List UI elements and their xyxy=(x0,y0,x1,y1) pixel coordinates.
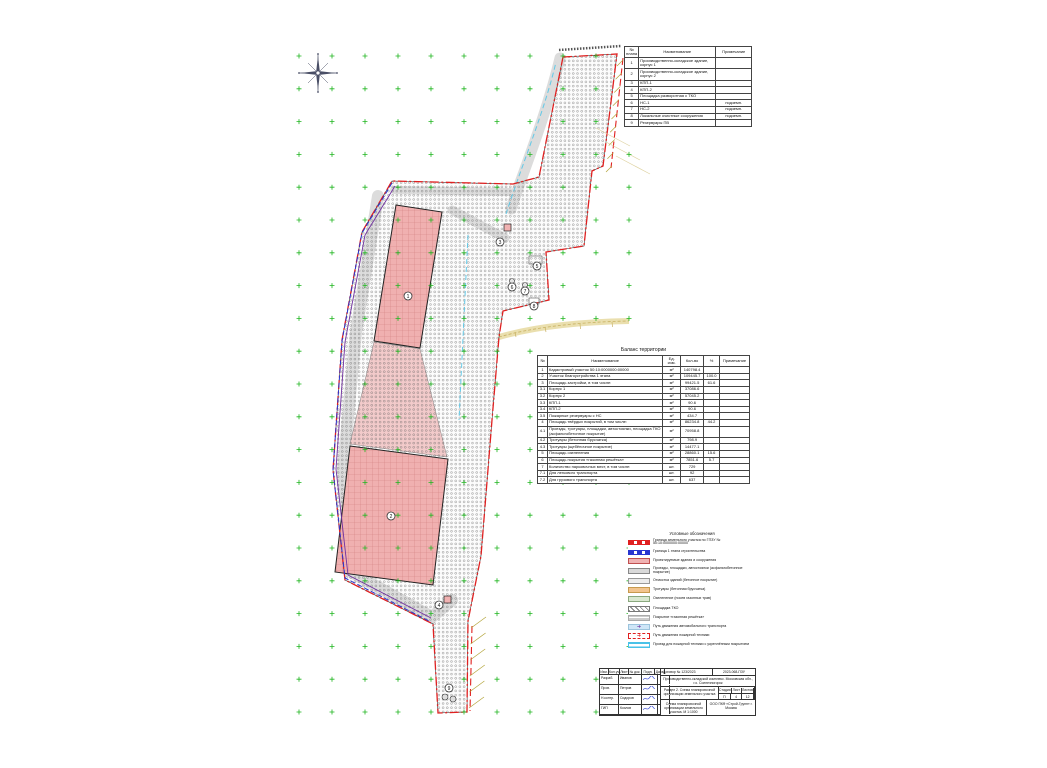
table-cell xyxy=(720,373,750,380)
table-row: 3.1Корпус 1м²37086.6 xyxy=(538,386,750,393)
table-cell: 637 xyxy=(681,477,704,484)
table-row: 3.5Пожарные резервуары с НСм²434.7 xyxy=(538,413,750,420)
table-cell: Проезды, тротуары, площадки, автостоянки… xyxy=(547,426,662,437)
table-cell xyxy=(720,426,750,437)
table-cell xyxy=(720,393,750,400)
legend-title: Условные обозначения xyxy=(628,531,756,536)
table-cell: Площадь твёрдых покрытий, в том числе: xyxy=(547,419,662,426)
svg-text:5: 5 xyxy=(536,264,539,270)
table-cell xyxy=(720,386,750,393)
table-cell xyxy=(720,367,750,374)
sheet-value: 4 xyxy=(731,694,743,699)
pink-swatch xyxy=(628,558,650,564)
green-swatch xyxy=(628,596,650,602)
table-cell: Тротуары (бетонная брусчатка) xyxy=(547,437,662,444)
column-header: % xyxy=(704,356,720,367)
table-cell: Резервуары ПВ xyxy=(639,120,716,127)
signature-col-header: № док. xyxy=(629,669,642,674)
signature-scribble xyxy=(642,685,658,694)
table-cell xyxy=(720,444,750,451)
table-cell: 109445.7 xyxy=(681,373,704,380)
table-cell xyxy=(704,367,720,374)
signature-role: Н.контр. xyxy=(600,695,619,704)
table-cell xyxy=(704,393,720,400)
table-cell: 6 xyxy=(625,100,639,107)
table-row: 8Локальные очистные сооруженияподземн. xyxy=(625,113,752,120)
document-code: 2023-068-ПЗУ xyxy=(713,669,755,675)
table-cell: 44.2 xyxy=(704,419,720,426)
table-row: 3КПП-1 xyxy=(625,80,752,87)
table-cell: КПП-1 xyxy=(547,400,662,407)
legend-label: Граница земельного участка по ГПЗУ № 50:… xyxy=(653,539,756,547)
table-row: 4.1Проезды, тротуары, площадки, автостоя… xyxy=(538,426,750,437)
existing-road xyxy=(499,321,629,337)
table-row: 3.2Корпус 2м²57045.2 xyxy=(538,393,750,400)
table-cell xyxy=(720,380,750,387)
table-cell xyxy=(720,437,750,444)
table-row: 9Резервуары ПВ xyxy=(625,120,752,127)
table-cell: 7.2 xyxy=(538,477,548,484)
legend-label: Проектируемые здания и сооружения xyxy=(653,559,716,563)
table-row: 7.2Для грузового транспорташт.637 xyxy=(538,477,750,484)
table-cell: м² xyxy=(663,457,681,464)
table-cell: 5 xyxy=(538,450,548,457)
svg-text:9: 9 xyxy=(448,686,451,692)
table-cell: 7 xyxy=(538,464,548,471)
signature-name: Петров xyxy=(619,685,642,694)
legend-label: Путь движения автомобильного транспорта xyxy=(653,625,726,629)
svg-text:1: 1 xyxy=(407,294,410,300)
table-cell: Тротуары (щебёночное покрытие) xyxy=(547,444,662,451)
table-cell: м² xyxy=(663,367,681,374)
svg-text:3: 3 xyxy=(499,240,502,246)
north-street xyxy=(559,46,621,50)
column-header: Примечание xyxy=(720,356,750,367)
arrow-auto-swatch: ➜ xyxy=(628,624,650,630)
table-cell: Площадь покрытия «газонная решётка» xyxy=(547,457,662,464)
balance-table-title: Баланс территории xyxy=(537,347,750,353)
plan-marker-6: 6 xyxy=(508,283,516,291)
svg-text:8: 8 xyxy=(533,304,536,310)
legend-label: Отмостка зданий (бетонное покрытие) xyxy=(653,579,717,583)
table-cell: 3 xyxy=(538,380,548,387)
drawing-name: Схема планировочной организации земельно… xyxy=(661,700,707,715)
table-row: 3.4КПП-2м²90.6 xyxy=(538,406,750,413)
table-cell xyxy=(704,477,720,484)
column-header: Наименование xyxy=(639,47,716,58)
table-cell: Площадь озеленения xyxy=(547,450,662,457)
table-cell: м² xyxy=(663,406,681,413)
table-cell: НС-1 xyxy=(639,100,716,107)
table-header-row: №НаименованиеЕд. изм.Кол-во%Примечание xyxy=(538,356,750,367)
signature-row: Разраб.Иванов xyxy=(600,675,660,685)
table-cell: м² xyxy=(663,426,681,437)
table-row: 3.3КПП-1м²90.6 xyxy=(538,400,750,407)
table-cell: КПП-1 xyxy=(639,80,716,87)
table-cell: м² xyxy=(663,400,681,407)
table-cell: 2 xyxy=(625,69,639,80)
title-block: Изм.Кол.уч.Лист№ док.Подп.Дата Разраб.Ив… xyxy=(599,668,756,716)
table-cell: Количество парковочных мест, в том числе… xyxy=(547,464,662,471)
table-cell: 2 xyxy=(538,373,548,380)
table-cell: м² xyxy=(663,450,681,457)
signature-name: Иванов xyxy=(619,675,642,684)
table-cell xyxy=(704,406,720,413)
table-cell: 140798.4 xyxy=(681,367,704,374)
signature-role: Пров. xyxy=(600,685,619,694)
signature-scribble xyxy=(642,705,658,714)
legend-item: ➜Путь движения пожарной техники xyxy=(628,633,756,639)
legend: Условные обозначения Граница земельного … xyxy=(628,531,756,652)
table-cell: 4.2 xyxy=(538,437,548,444)
table-cell xyxy=(704,386,720,393)
plan-marker-9: 9 xyxy=(445,684,453,692)
table-cell: 4.1 xyxy=(538,426,548,437)
table-cell: 86234.8 xyxy=(681,419,704,426)
sheets-label: Листов xyxy=(742,688,754,693)
cyan-swatch xyxy=(628,642,650,648)
table-cell: Локальные очистные сооружения xyxy=(639,113,716,120)
table-cell: 3.1 xyxy=(538,386,548,393)
table-cell: 3 xyxy=(625,80,639,87)
table-cell: Производственно-складское здание, корпус… xyxy=(639,58,716,69)
svg-text:6: 6 xyxy=(511,285,514,291)
legend-label: Граница 1 этапа строительства xyxy=(653,550,705,554)
column-header: Примечание xyxy=(716,47,752,58)
table-cell: 4 xyxy=(538,419,548,426)
svg-text:7: 7 xyxy=(524,289,527,295)
table-cell xyxy=(720,400,750,407)
signature-scribble xyxy=(642,695,658,704)
plan-marker-2: 2 xyxy=(387,512,395,520)
table-row: 7НС-2подземн. xyxy=(625,106,752,113)
table-cell: Пожарные резервуары с НС xyxy=(547,413,662,420)
column-header: Наименование xyxy=(547,356,662,367)
section-name: Раздел 2. Схема планировочной организаци… xyxy=(661,687,719,699)
arrow-fire-swatch: ➜ xyxy=(628,633,650,639)
arrow-icon: ➜ xyxy=(637,634,641,639)
table-cell: 28860.1 xyxy=(681,450,704,457)
table-cell: Кадастровый участок 50:10:0000000:00000 xyxy=(547,367,662,374)
column-header: № плана xyxy=(625,47,639,58)
signature-role: Разраб. xyxy=(600,675,619,684)
table-cell: Площадка разворотная с ТКО xyxy=(639,93,716,100)
buildings-table: № планаНаименованиеПримечание1Производст… xyxy=(624,46,752,127)
table-cell: 4.3 xyxy=(538,444,548,451)
table-row: 4Площадь твёрдых покрытий, в том числе:м… xyxy=(538,419,750,426)
table-cell: 14477.1 xyxy=(681,444,704,451)
column-header: № xyxy=(538,356,548,367)
table-row: 7Количество парковочных мест, в том числ… xyxy=(538,464,750,471)
table-cell: 7 xyxy=(625,106,639,113)
table-cell: м² xyxy=(663,373,681,380)
table-cell: 7.1 xyxy=(538,470,548,477)
kpp-1 xyxy=(504,224,511,231)
table-cell: 100.0 xyxy=(704,373,720,380)
table-cell: 92 xyxy=(681,470,704,477)
table-cell: 99421.5 xyxy=(681,380,704,387)
orange-swatch xyxy=(628,587,650,593)
table-row: 6Площадь покрытия «газонная решётка»м²78… xyxy=(538,457,750,464)
table-cell: Участок благоустройства 1 этапа xyxy=(547,373,662,380)
site-plan-map: 123456789 xyxy=(0,0,1047,768)
table-cell xyxy=(716,93,752,100)
plan-marker-1: 1 xyxy=(404,292,412,300)
table-cell: КПП-2 xyxy=(639,87,716,94)
signature-col-header: Подп. xyxy=(642,669,655,674)
drawing-sheet: 123456789 № планаНаименованиеПримечание1… xyxy=(0,0,1047,768)
table-cell: 6 xyxy=(538,457,548,464)
table-cell: Площадь застройки, в том числе: xyxy=(547,380,662,387)
table-cell: шт. xyxy=(663,477,681,484)
legend-item: ➜Путь движения автомобильного транспорта xyxy=(628,624,756,630)
table-cell xyxy=(720,406,750,413)
table-row: 4.2Тротуары (бетонная брусчатка)м²798.9 xyxy=(538,437,750,444)
table-cell: подземн. xyxy=(716,100,752,107)
table-cell: шт. xyxy=(663,464,681,471)
gray-swatch xyxy=(628,568,650,574)
table-cell xyxy=(704,444,720,451)
table-cell: 3.5 xyxy=(538,413,548,420)
table-cell xyxy=(716,69,752,80)
kpp-2 xyxy=(444,596,451,603)
signature-name: Сидоров xyxy=(619,695,642,704)
table-cell: 729 xyxy=(681,464,704,471)
hatch-swatch xyxy=(628,606,650,612)
table-cell: 434.7 xyxy=(681,413,704,420)
table-row: 1Кадастровый участок 50:10:0000000:00000… xyxy=(538,367,750,374)
plan-marker-5: 5 xyxy=(533,262,541,270)
signature-row: Пров.Петров xyxy=(600,685,660,695)
table-cell xyxy=(720,450,750,457)
legend-label: Покрытие «газонная решётка» xyxy=(653,616,704,620)
table-cell xyxy=(720,457,750,464)
balance-table: №НаименованиеЕд. изм.Кол-во%Примечание1К… xyxy=(537,355,750,484)
legend-item: Проезд для пожарной техники с укреплённы… xyxy=(628,642,756,648)
table-cell: Производственно-складское здание, корпус… xyxy=(639,69,716,80)
stage-label: Стадия xyxy=(719,688,732,693)
table-cell xyxy=(716,87,752,94)
table-cell xyxy=(720,413,750,420)
table-cell xyxy=(720,464,750,471)
table-cell: 90.6 xyxy=(681,400,704,407)
table-row: 3Площадь застройки, в том числе:м²99421.… xyxy=(538,380,750,387)
red-boundary-swatch xyxy=(628,540,650,545)
table-cell xyxy=(704,413,720,420)
column-header: Кол-во xyxy=(681,356,704,367)
fire-reservoir-2 xyxy=(450,696,456,702)
plan-marker-3: 3 xyxy=(496,238,504,246)
legend-item: Отмостка зданий (бетонное покрытие) xyxy=(628,578,756,584)
table-row: 4.3Тротуары (щебёночное покрытие)м²14477… xyxy=(538,444,750,451)
table-cell xyxy=(704,400,720,407)
table-cell: 4 xyxy=(625,87,639,94)
table-row: 6НС-1подземн. xyxy=(625,100,752,107)
legend-item: Тротуары (бетонная брусчатка) xyxy=(628,587,756,593)
signature-col-header: Лист xyxy=(620,669,629,674)
table-cell: 8 xyxy=(625,113,639,120)
table-row: 2Участок благоустройства 1 этапам²109445… xyxy=(538,373,750,380)
table-cell: 70958.8 xyxy=(681,426,704,437)
table-cell xyxy=(716,58,752,69)
legend-label: Озеленение (посев газонных трав) xyxy=(653,597,711,601)
legend-label: Тротуары (бетонная брусчатка) xyxy=(653,588,705,592)
signature-icon xyxy=(643,686,655,691)
table-cell: 9 xyxy=(625,120,639,127)
table-cell: 3.2 xyxy=(538,393,548,400)
table-cell: 1 xyxy=(625,58,639,69)
table-cell: Корпус 2 xyxy=(547,393,662,400)
signature-row: ГИПКозлов xyxy=(600,705,660,715)
table-cell: 90.6 xyxy=(681,406,704,413)
sheet-label: Лист xyxy=(732,688,742,693)
table-row: 1Производственно-складское здание, корпу… xyxy=(625,58,752,69)
legend-item: Площадка ТКО xyxy=(628,606,756,612)
legend-label: Проезды, площадки, автостоянки (асфальто… xyxy=(653,567,756,575)
legend-item: Озеленение (посев газонных трав) xyxy=(628,596,756,602)
table-cell: Корпус 1 xyxy=(547,386,662,393)
sheets-value: 12 xyxy=(742,694,754,699)
table-cell: Для легкового транспорта xyxy=(547,470,662,477)
table-cell: подземн. xyxy=(716,106,752,113)
svg-text:2: 2 xyxy=(390,514,393,520)
signature-col-header: Изм. xyxy=(600,669,609,674)
balance-table-wrap: Баланс территории №НаименованиеЕд. изм.К… xyxy=(537,347,750,484)
table-cell: 1 xyxy=(538,367,548,374)
table-cell: Для грузового транспорта xyxy=(547,477,662,484)
plan-marker-7: 7 xyxy=(521,287,529,295)
table-row: 5Площадь озеленениям²28860.115.6 xyxy=(538,450,750,457)
table-cell: 61.6 xyxy=(704,380,720,387)
signature-role: ГИП xyxy=(600,705,619,714)
table-cell: м² xyxy=(663,419,681,426)
plan-marker-4: 4 xyxy=(435,601,443,609)
table-row: 7.1Для легкового транспорташт.92 xyxy=(538,470,750,477)
buildings-table-wrap: № планаНаименованиеПримечание1Производст… xyxy=(624,46,752,127)
stage-cells: Стадия Лист Листов П 4 12 xyxy=(719,687,755,699)
signature-icon xyxy=(643,676,655,681)
legend-item: Проезды, площадки, автостоянки (асфальто… xyxy=(628,567,756,575)
signature-name: Козлов xyxy=(619,705,642,714)
contract-number: Договор № 123/2023 xyxy=(661,669,713,675)
signature-scribble xyxy=(642,675,658,684)
legend-label: Площадка ТКО xyxy=(653,607,678,611)
legend-label: Путь движения пожарной техники xyxy=(653,634,709,638)
legend-item: Проектируемые здания и сооружения xyxy=(628,558,756,564)
signature-col-header: Кол.уч. xyxy=(609,669,620,674)
table-cell xyxy=(704,426,720,437)
table-cell: 5.7 xyxy=(704,457,720,464)
lightgray-swatch xyxy=(628,578,650,584)
table-cell: 15.6 xyxy=(704,450,720,457)
table-cell: м² xyxy=(663,413,681,420)
dashes-swatch xyxy=(628,615,650,621)
table-cell: 3.3 xyxy=(538,400,548,407)
arrow-icon: ➜ xyxy=(637,625,641,630)
table-cell: шт. xyxy=(663,470,681,477)
table-row: 2Производственно-складское здание, корпу… xyxy=(625,69,752,80)
table-cell xyxy=(720,477,750,484)
table-cell xyxy=(720,419,750,426)
table-cell: м² xyxy=(663,444,681,451)
legend-item: Покрытие «газонная решётка» xyxy=(628,615,756,621)
legend-item: Граница 1 этапа строительства xyxy=(628,550,756,555)
table-cell: НС-2 xyxy=(639,106,716,113)
signature-row: Н.контр.Сидоров xyxy=(600,695,660,705)
table-cell: м² xyxy=(663,380,681,387)
table-cell: 5 xyxy=(625,93,639,100)
table-cell: подземн. xyxy=(716,113,752,120)
table-row: 5Площадка разворотная с ТКО xyxy=(625,93,752,100)
table-cell xyxy=(716,120,752,127)
table-cell: 3.4 xyxy=(538,406,548,413)
table-cell: КПП-2 xyxy=(547,406,662,413)
column-header: Ед. изм. xyxy=(663,356,681,367)
table-cell: 7851.6 xyxy=(681,457,704,464)
company-name: ООО ПКФ «Строй-Групп» г. Москва xyxy=(707,700,755,715)
fire-reservoir-1 xyxy=(442,694,448,700)
blue-boundary-swatch xyxy=(628,550,650,555)
table-cell xyxy=(720,470,750,477)
plan-marker-8: 8 xyxy=(530,302,538,310)
table-cell xyxy=(704,437,720,444)
table-cell: м² xyxy=(663,386,681,393)
table-cell xyxy=(704,464,720,471)
table-cell: м² xyxy=(663,393,681,400)
legend-label: Проезд для пожарной техники с укреплённы… xyxy=(653,643,749,647)
signature-icon xyxy=(643,706,655,711)
legend-item: Граница земельного участка по ГПЗУ № 50:… xyxy=(628,539,756,547)
table-cell xyxy=(716,80,752,87)
project-name: Производственно-складской комплекс. Моск… xyxy=(661,676,755,687)
table-header-row: № планаНаименованиеПримечание xyxy=(625,47,752,58)
svg-text:4: 4 xyxy=(438,603,441,609)
table-cell: м² xyxy=(663,437,681,444)
table-cell xyxy=(704,470,720,477)
stage-value: П xyxy=(719,694,731,699)
signature-icon xyxy=(643,696,655,701)
table-row: 4КПП-2 xyxy=(625,87,752,94)
table-cell: 57045.2 xyxy=(681,393,704,400)
title-block-signatures: Изм.Кол.уч.Лист№ док.Подп.Дата Разраб.Ив… xyxy=(600,669,661,715)
table-cell: 798.9 xyxy=(681,437,704,444)
table-cell: 37086.6 xyxy=(681,386,704,393)
